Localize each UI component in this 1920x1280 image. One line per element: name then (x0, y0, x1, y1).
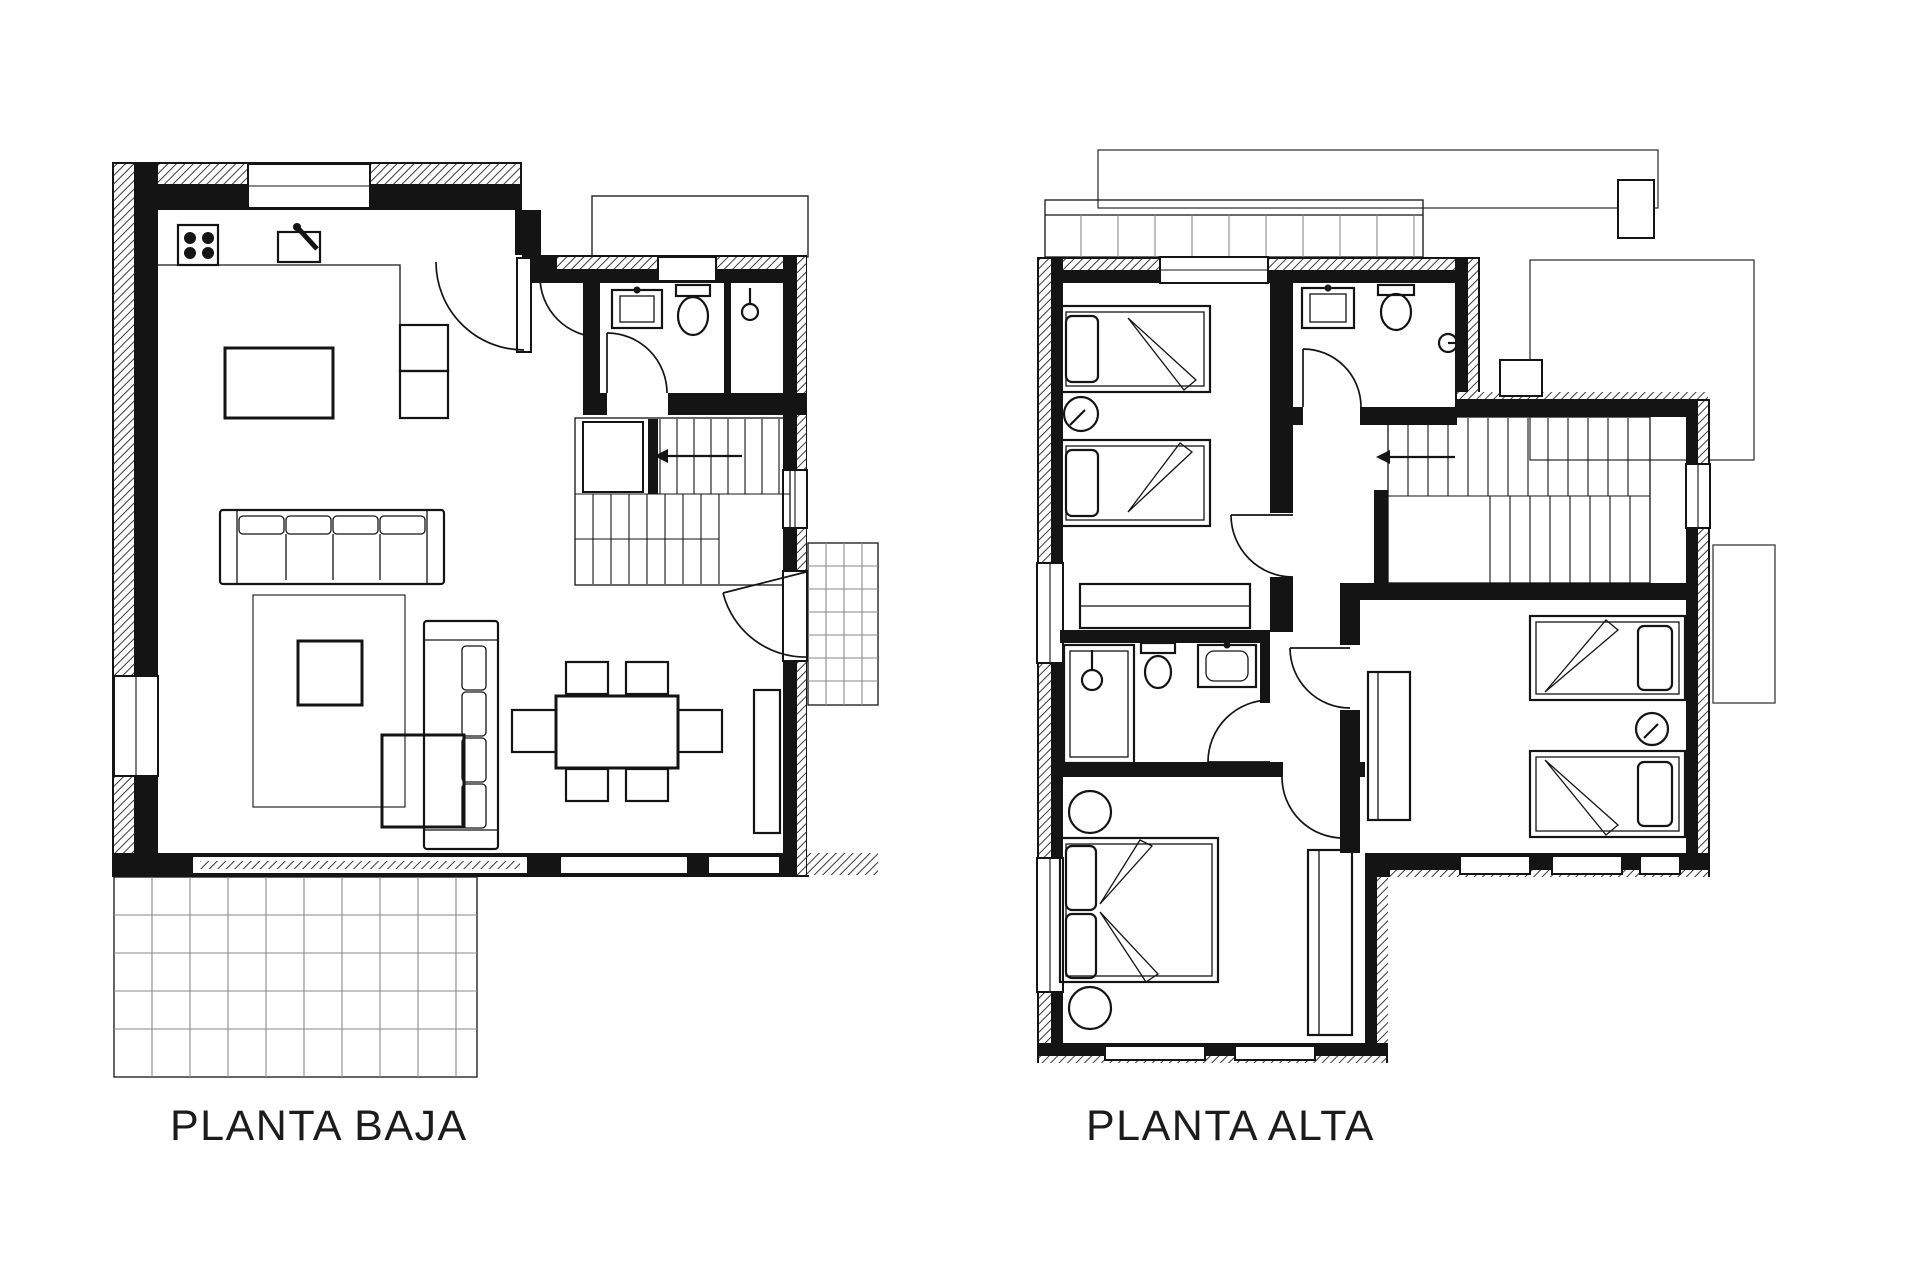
chair-icon (626, 769, 668, 801)
bathroom-top (1302, 285, 1542, 408)
pillow (1066, 316, 1098, 382)
chimney (1618, 180, 1654, 238)
door-arc-icon (1208, 700, 1270, 762)
counter-edge (158, 265, 400, 325)
chair-icon (626, 662, 668, 694)
chair-icon (678, 710, 722, 752)
door-arc-icon (1282, 777, 1343, 838)
shower-icon (1064, 645, 1134, 763)
porch-grid (807, 543, 878, 875)
master-bedroom (1060, 777, 1352, 1035)
chair-icon (566, 662, 608, 694)
single-bed-icon (1530, 751, 1685, 837)
wardrobe-icon (1308, 850, 1352, 1035)
chair-icon (566, 769, 608, 801)
dining-table-icon (556, 696, 678, 768)
planta-alta-plan (1037, 150, 1775, 1063)
nightstand-icon (1069, 791, 1111, 833)
pillow (1638, 762, 1672, 826)
toilet-icon (1141, 643, 1175, 653)
door-arc-icon (607, 333, 667, 393)
pillow (1066, 450, 1098, 516)
door-arc-icon (1303, 349, 1361, 407)
stairs-upper (1376, 417, 1650, 583)
pillow (1066, 914, 1096, 978)
pillow (1066, 846, 1096, 910)
shower-icon (742, 304, 758, 320)
stair-treads (1388, 418, 1650, 583)
toilet-icon (676, 285, 710, 296)
door-leaf (517, 258, 531, 352)
bedroom-nw (1060, 306, 1293, 628)
planta-baja-label: PLANTA BAJA (170, 1102, 468, 1151)
sofa-icon (220, 510, 444, 584)
coffee-table (298, 641, 362, 705)
door-arc-icon (1290, 648, 1350, 708)
kitchen-island (225, 348, 333, 418)
stove-icon (178, 225, 218, 265)
pillow (1638, 626, 1672, 690)
living-room (220, 510, 780, 849)
interior-walls (1060, 283, 1690, 853)
single-bed-icon (1060, 306, 1210, 392)
bathroom (583, 283, 807, 415)
single-bed-icon (1530, 616, 1685, 700)
chair-icon (512, 710, 556, 752)
wardrobe-icon (1713, 545, 1775, 703)
bathroom-middle (1064, 642, 1270, 764)
cabinet (400, 371, 448, 418)
cabinet (400, 325, 448, 371)
understair-closet (583, 422, 643, 492)
planta-baja-plan (112, 162, 878, 1077)
kitchen (158, 223, 448, 418)
nightstand-icon (1069, 987, 1111, 1029)
balcony-grid (1045, 200, 1423, 257)
dining-set (512, 662, 722, 801)
door-arc-icon (436, 262, 524, 350)
single-bed-icon (1060, 440, 1210, 526)
exterior-walls (1037, 257, 1710, 1063)
tv-bench (754, 690, 780, 833)
wardrobe-icon (1368, 672, 1410, 820)
roof-outline (1098, 150, 1775, 703)
roof-outline (592, 196, 808, 257)
floor-plan-sheet: PLANTA BAJA PLANTA ALTA (0, 0, 1920, 1280)
terrace-grid (114, 877, 477, 1077)
door-arc-icon (1231, 515, 1293, 577)
floor-plan-drawing (0, 0, 1920, 1280)
windows (114, 164, 807, 874)
stairs (575, 418, 790, 585)
planta-alta-label: PLANTA ALTA (1086, 1102, 1375, 1151)
